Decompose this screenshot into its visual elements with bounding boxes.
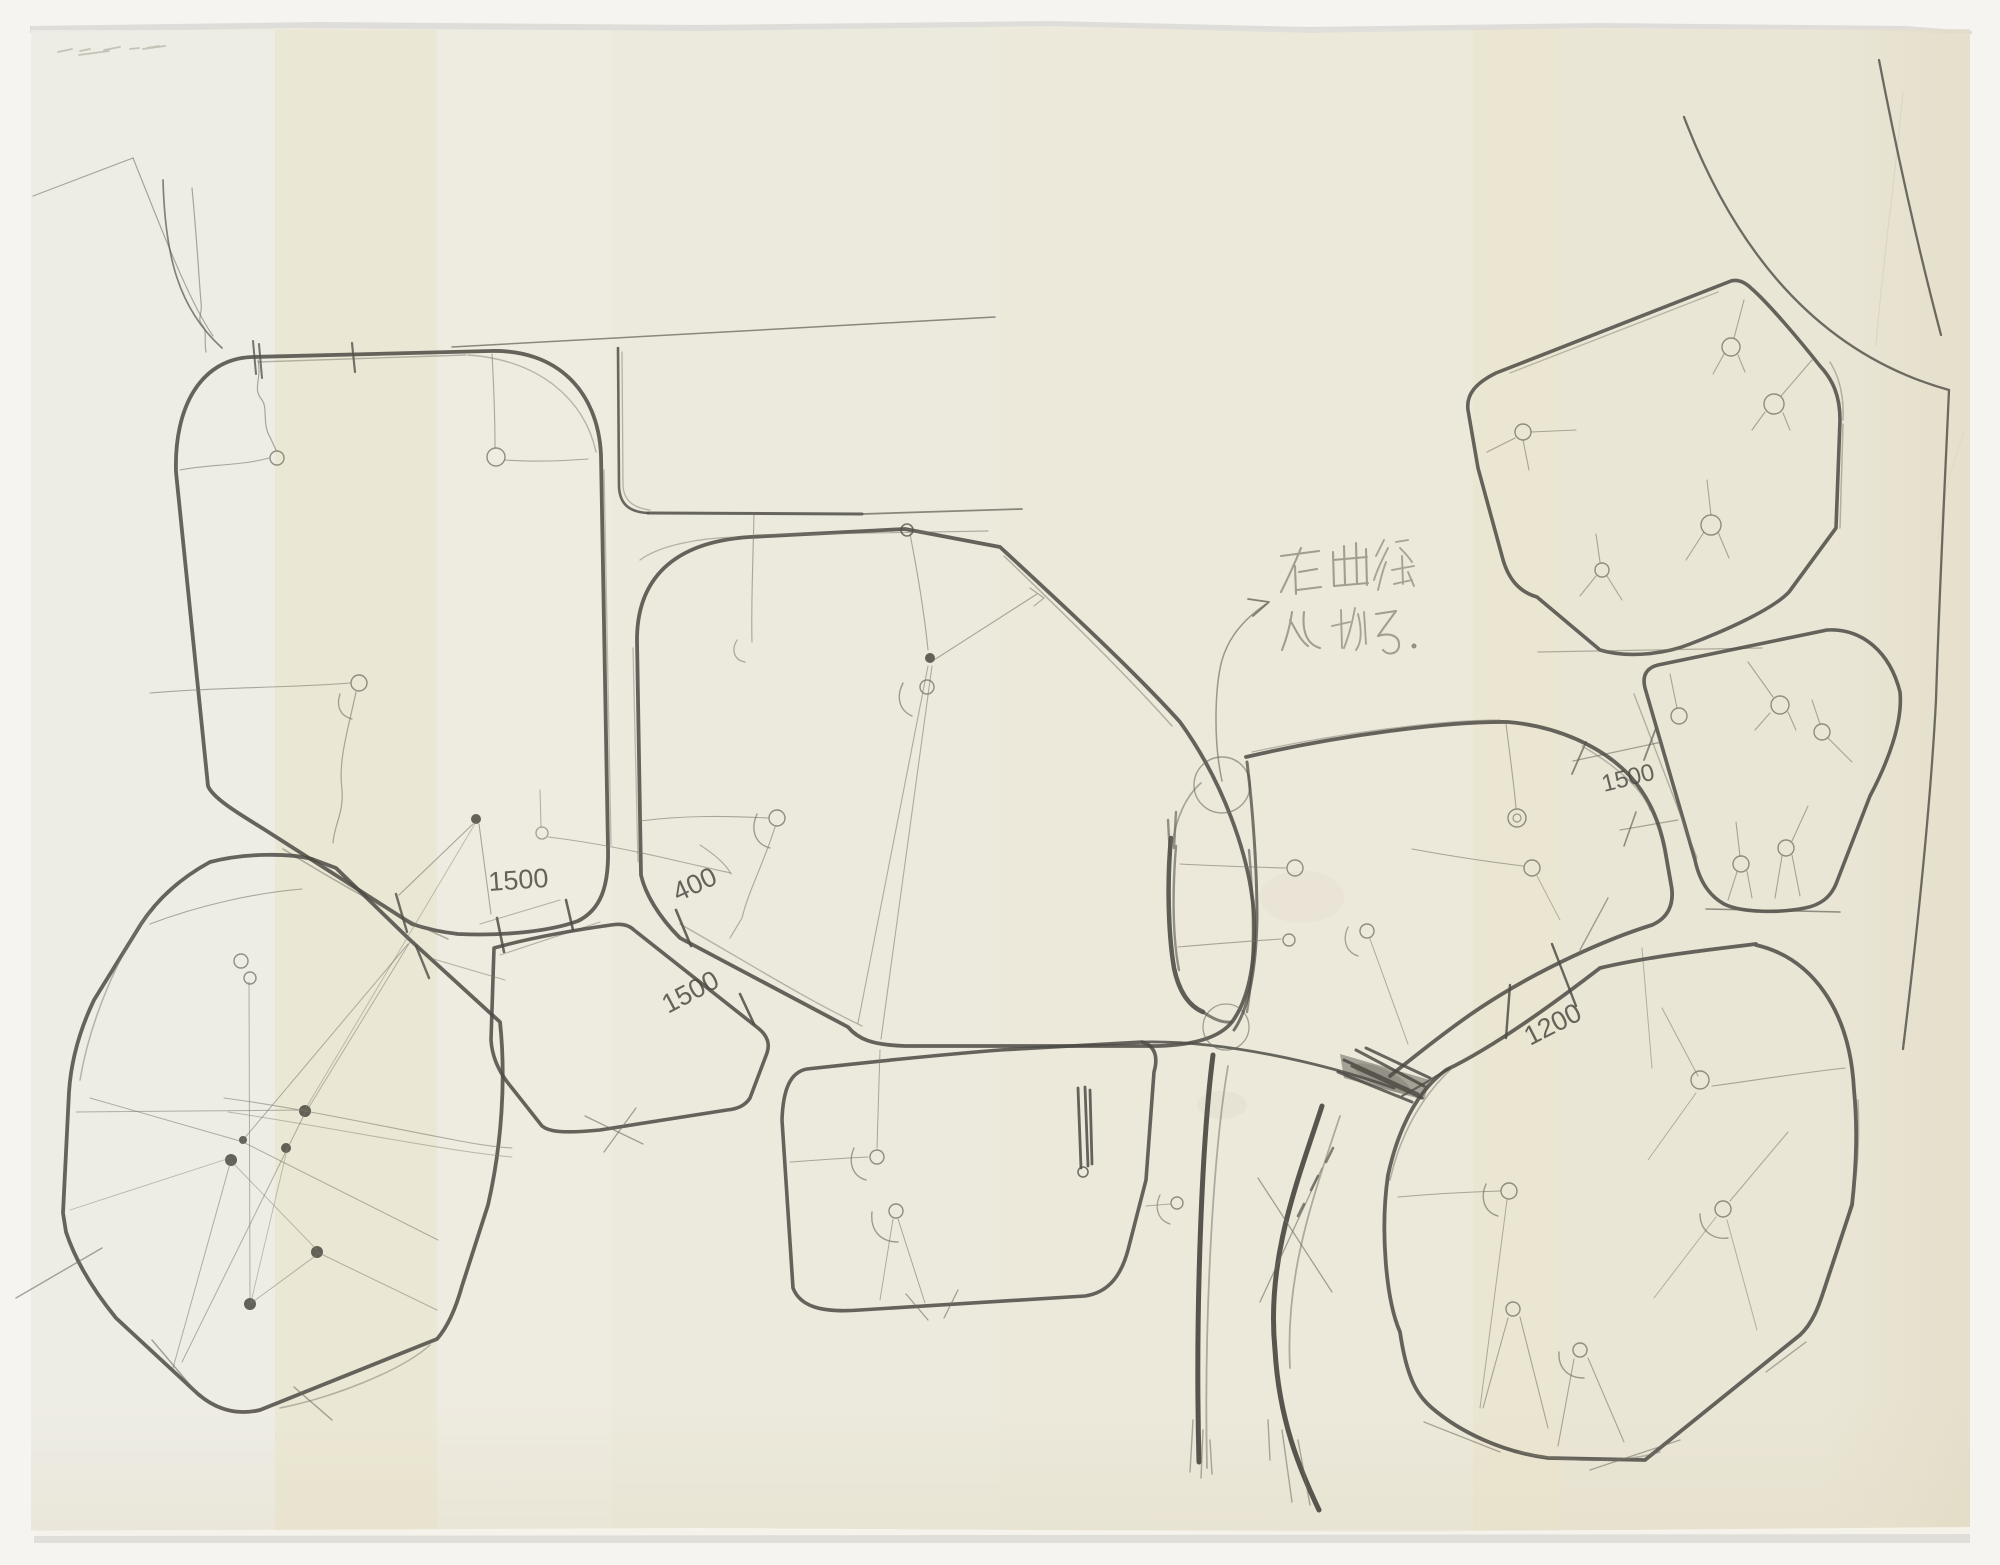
svg-text:1500: 1500: [487, 863, 549, 897]
